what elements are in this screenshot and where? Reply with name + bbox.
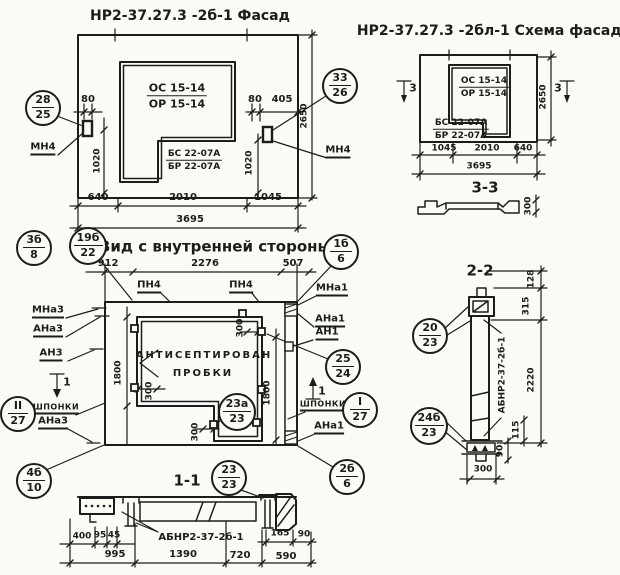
scheme-title: НР2-37.27.3 -2бл-1 Схема фасада: [357, 24, 620, 38]
note-antiseptic-line1: АНТИСЕПТИРОВАН: [136, 351, 273, 361]
label-ana1-lower: АНа1: [314, 422, 344, 435]
mark-br: БР 22-07А: [433, 130, 489, 142]
label-mn4-left: МН4: [30, 143, 55, 156]
dim-95: 95: [94, 532, 107, 541]
callout-25-24: 25 24: [325, 349, 361, 385]
dim-1800-left: 1800: [115, 360, 124, 385]
dim-400: 400: [73, 533, 92, 542]
dim-90-s11: 90: [298, 531, 311, 540]
mark-or: ОР 15-14: [147, 96, 207, 111]
dim-405: 405: [272, 95, 293, 105]
callout-28-25: 28 25: [25, 90, 61, 126]
dim-45: 45: [108, 532, 121, 541]
label-shponki-left: ШПОНКИ: [33, 404, 79, 415]
callout-23a-23: 23а 23: [218, 393, 256, 431]
dim-90-s22: 90: [497, 445, 506, 458]
dim-720: 720: [230, 551, 251, 561]
label-shponki-right: ШПОНКИ: [300, 401, 346, 412]
part-label-s11: АБНР2-37-2б-1: [158, 533, 243, 543]
cut-marker-1-left: 1: [63, 377, 71, 388]
dim-1045-scheme: 1045: [431, 145, 456, 154]
label-pn4-right: ПН4: [229, 281, 253, 294]
mark-bs: БС 22-07А: [166, 149, 222, 161]
dim-2010-scheme: 2010: [474, 145, 499, 154]
dim-3695-scheme: 3695: [466, 163, 491, 172]
dim-640-scheme: 640: [514, 145, 533, 154]
section-2-2-title: 2-2: [466, 264, 493, 279]
label-an3: АН3: [39, 349, 62, 362]
section-3-3-title: 3-3: [471, 181, 498, 196]
dim-912: 912: [98, 259, 119, 269]
dim-507: 507: [283, 259, 304, 269]
dim-1045: 1045: [254, 193, 282, 203]
label-mna3: МНа3: [32, 306, 64, 319]
callout-3b-8: 3б 8: [16, 230, 52, 266]
callout-20-23: 20 23: [412, 318, 448, 354]
dim-2010: 2010: [169, 193, 197, 203]
callout-II-27: II 27: [0, 396, 36, 432]
mark-bs: БС 22-07А: [433, 118, 489, 130]
dim-995: 995: [105, 550, 126, 560]
callout-33-26: 33 26: [322, 68, 358, 104]
callout-I-27: I 27: [342, 392, 378, 428]
facade-title: НР2-37.27.3 -2б-1 Фасад: [90, 9, 290, 23]
section-marker-3-left: 3: [409, 83, 417, 94]
note-antiseptic-line2: ПРОБКИ: [173, 369, 233, 379]
drawing-sheet: НР2-37.27.3 -2б-1 Фасад ОС 15-14 ОР 15-1…: [0, 0, 620, 575]
dim-300-s22: 300: [474, 466, 493, 475]
label-mn4-right: МН4: [325, 146, 350, 159]
callout-23-23: 23 23: [211, 460, 247, 496]
label-pn4-left: ПН4: [137, 281, 161, 294]
dim-1800-right: 1800: [264, 380, 273, 405]
cut-marker-1-right: 1: [318, 386, 326, 397]
mark-br: БР 22-07А: [166, 161, 222, 173]
dim-300-left: 300: [146, 382, 155, 401]
inner-view-title: Вид с внутренней стороны: [99, 240, 331, 255]
dim-315: 315: [523, 297, 532, 316]
callout-4b-10: 4б 10: [16, 463, 52, 499]
mark-os: ОС 15-14: [147, 81, 207, 96]
dim-3695: 3695: [176, 215, 204, 225]
section-1-1-title: 1-1: [173, 474, 200, 489]
mark-os: ОС 15-14: [459, 76, 509, 88]
facade-panel-mark: БС 22-07А БР 22-07А: [166, 149, 222, 174]
dim-165: 165: [271, 530, 290, 539]
callout-2b-6: 2б 6: [329, 459, 365, 495]
dim-640: 640: [88, 193, 109, 203]
facade-window-mark: ОС 15-14 ОР 15-14: [147, 81, 207, 111]
dim-1020-right: 1020: [246, 150, 255, 175]
part-label-s22: АБНР2-37-2б-1: [499, 337, 508, 414]
dim-300-top: 300: [237, 319, 246, 338]
dim-1020-left: 1020: [94, 148, 103, 173]
section-marker-3-right: 3: [554, 83, 562, 94]
dim-300-s33: 300: [525, 197, 534, 216]
dim-2220: 2220: [528, 367, 537, 392]
dim-2650-facade: 2650: [301, 103, 310, 128]
dim-2276: 2276: [191, 259, 219, 269]
dim-590: 590: [276, 552, 297, 562]
dim-300-bottom: 300: [192, 423, 201, 442]
label-mna1: МНа1: [316, 284, 348, 297]
callout-1b-6: 1б 6: [323, 234, 359, 270]
dim-115: 115: [513, 421, 522, 440]
callout-24b-23: 24б 23: [410, 407, 448, 445]
dim-80-left: 80: [81, 95, 95, 105]
scheme-window-mark: ОС 15-14 ОР 15-14: [459, 76, 509, 101]
label-ana3-lower: АНа3: [38, 417, 68, 430]
dim-2650-scheme: 2650: [540, 84, 549, 109]
scheme-panel-mark: БС 22-07А БР 22-07А: [433, 118, 489, 143]
dim-80-right: 80: [248, 95, 262, 105]
label-an1: АН1: [315, 328, 338, 341]
mark-or: ОР 15-14: [459, 88, 509, 100]
dim-1390: 1390: [169, 550, 197, 560]
dim-128: 128: [528, 270, 537, 289]
callout-19b-22: 19б 22: [69, 227, 107, 265]
label-ana3-upper: АНа3: [33, 325, 63, 338]
